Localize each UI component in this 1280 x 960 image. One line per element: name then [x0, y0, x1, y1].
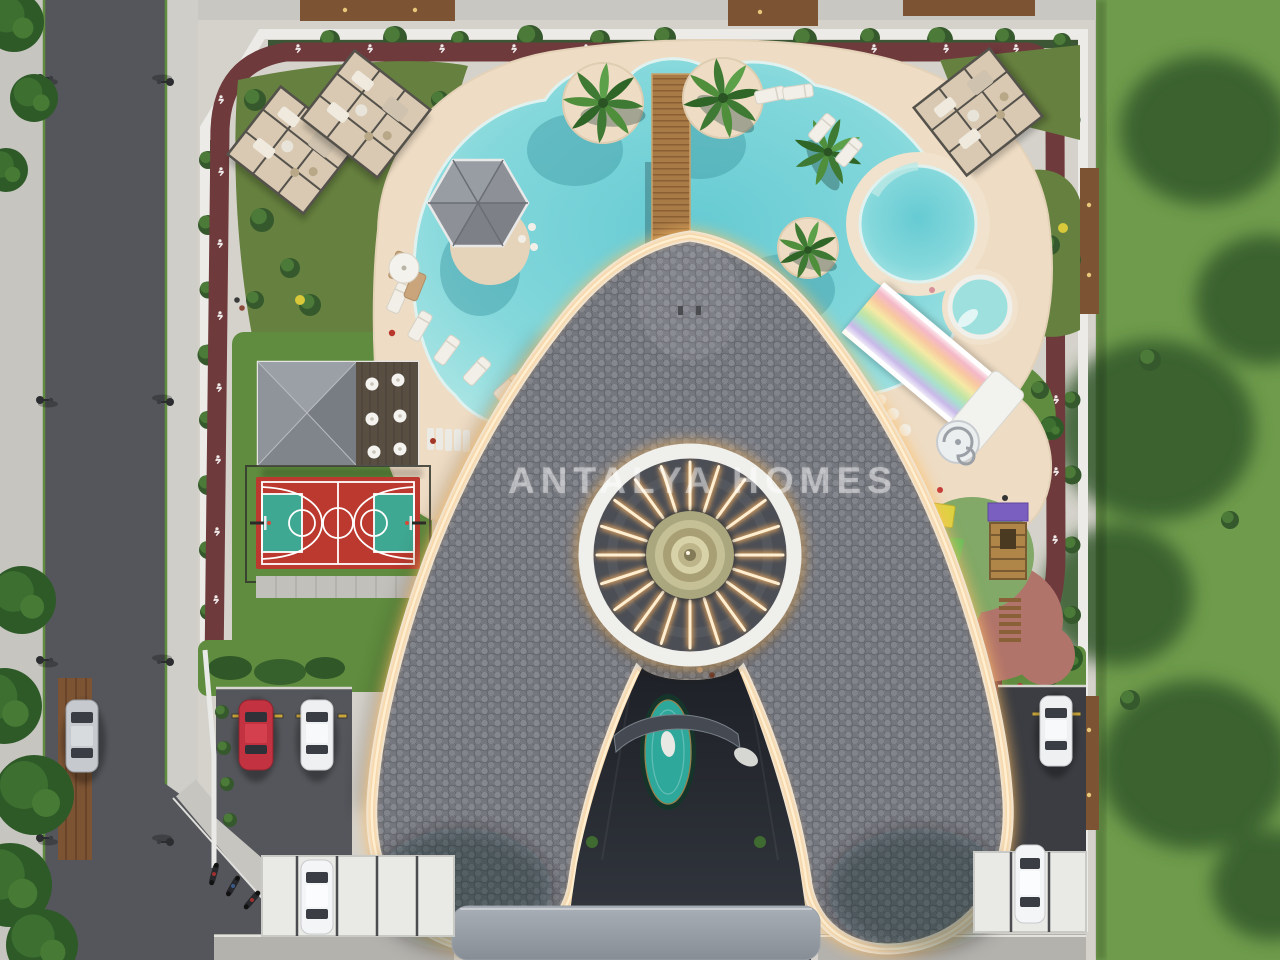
white-car: [1035, 694, 1077, 778]
spiral-stair: [937, 421, 979, 464]
carport-car-white: [1015, 845, 1045, 923]
splash-pool: [950, 277, 1010, 337]
pyramid-roof: [258, 362, 356, 465]
carport-car-white: [301, 860, 333, 934]
person-figure: [1002, 495, 1008, 501]
east-carport: [974, 845, 1086, 932]
entrance-canopy: [452, 906, 820, 960]
person-figure: [234, 297, 240, 303]
person-figure: [239, 305, 245, 311]
person-figure: [937, 487, 943, 493]
white-car: [296, 698, 338, 782]
dining-terrace: [356, 362, 418, 465]
red-car: [234, 698, 278, 782]
person-figure: [929, 287, 935, 293]
entrance-fountain: [640, 694, 696, 810]
basketball-court: [246, 466, 430, 598]
watermark-text: ANTALYA HOMES: [508, 460, 928, 502]
person-figure: [389, 330, 395, 336]
aerial-render: ANTALYA HOMES: [0, 0, 1280, 960]
silver-car: [62, 700, 106, 784]
person-figure: [430, 438, 436, 444]
west-carport: [262, 856, 454, 936]
gold-medallion: [644, 509, 736, 601]
